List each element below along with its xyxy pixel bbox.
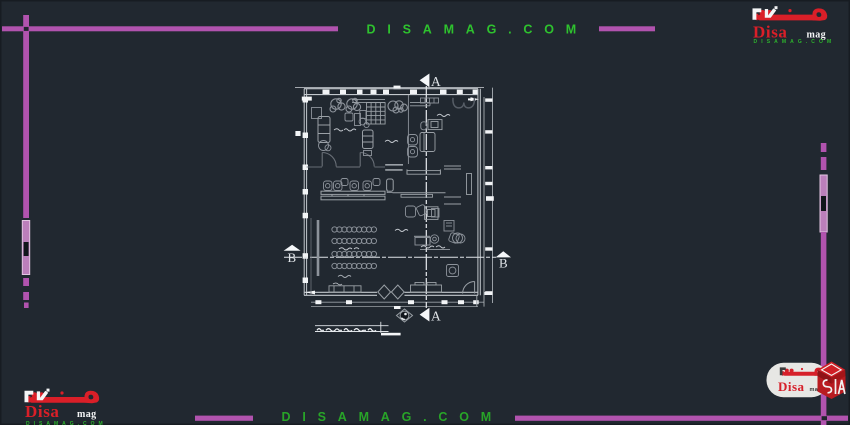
svg-text:A: A — [431, 74, 441, 89]
svg-text:DISAMAG.COM: DISAMAG.COM — [754, 39, 836, 45]
svg-text:mag: mag — [77, 409, 97, 420]
svg-text:DISAMAG.COM: DISAMAG.COM — [282, 410, 503, 424]
svg-text:A: A — [431, 309, 441, 324]
svg-text:Disa: Disa — [25, 402, 60, 421]
svg-text:DISAMAG.COM: DISAMAG.COM — [26, 421, 107, 425]
svg-text:DISAMAG.COM: DISAMAG.COM — [367, 23, 588, 37]
svg-text:B: B — [288, 250, 297, 265]
svg-text:B: B — [499, 255, 508, 270]
svg-text:Disa: Disa — [778, 379, 805, 394]
